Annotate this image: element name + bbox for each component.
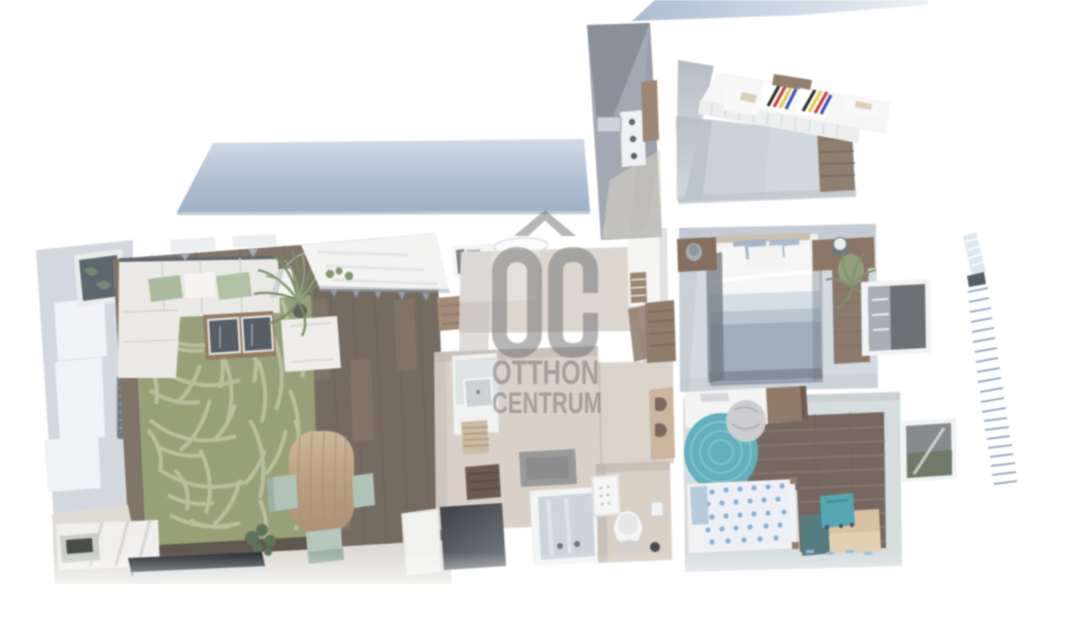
svg-text:CENTRUM: CENTRUM [492,387,602,420]
